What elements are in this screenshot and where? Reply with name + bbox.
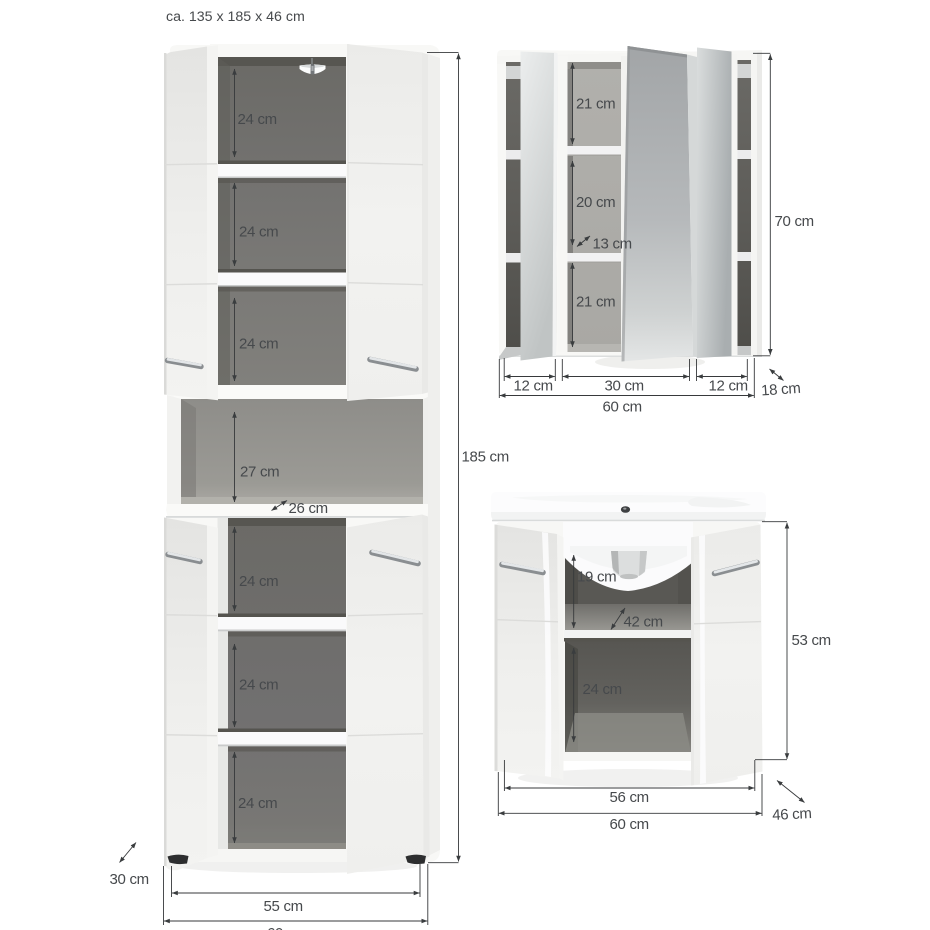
svg-text:30 cm: 30 cm (605, 378, 644, 395)
svg-text:12 cm: 12 cm (709, 378, 748, 395)
svg-text:18 cm: 18 cm (761, 380, 801, 400)
svg-text:26 cm: 26 cm (289, 500, 328, 517)
svg-text:60 cm: 60 cm (603, 399, 642, 416)
svg-text:53 cm: 53 cm (792, 632, 831, 649)
svg-text:12 cm: 12 cm (514, 378, 553, 395)
svg-text:20 cm: 20 cm (576, 194, 615, 211)
svg-text:24 cm: 24 cm (239, 573, 278, 590)
svg-text:55 cm: 55 cm (264, 898, 303, 915)
svg-text:56 cm: 56 cm (610, 789, 649, 806)
svg-text:24 cm: 24 cm (238, 111, 277, 128)
svg-text:60 cm: 60 cm (610, 816, 649, 833)
svg-text:42 cm: 42 cm (624, 614, 663, 631)
svg-text:24 cm: 24 cm (239, 224, 278, 241)
svg-text:30 cm: 30 cm (110, 871, 149, 888)
svg-text:13 cm: 13 cm (593, 236, 632, 253)
svg-text:24 cm: 24 cm (239, 336, 278, 353)
svg-text:21 cm: 21 cm (576, 294, 615, 311)
svg-text:19 cm: 19 cm (577, 569, 616, 586)
svg-text:27 cm: 27 cm (240, 464, 279, 481)
svg-text:24 cm: 24 cm (238, 795, 277, 812)
svg-text:46 cm: 46 cm (772, 805, 812, 824)
svg-text:ca. 135 x 185 x 46 cm: ca. 135 x 185 x 46 cm (166, 9, 305, 25)
svg-text:24 cm: 24 cm (583, 681, 622, 698)
svg-text:24 cm: 24 cm (239, 677, 278, 694)
svg-text:21 cm: 21 cm (576, 96, 615, 113)
svg-text:70 cm: 70 cm (775, 213, 814, 230)
svg-text:185 cm: 185 cm (462, 449, 509, 466)
svg-text:60 cm: 60 cm (267, 925, 306, 930)
